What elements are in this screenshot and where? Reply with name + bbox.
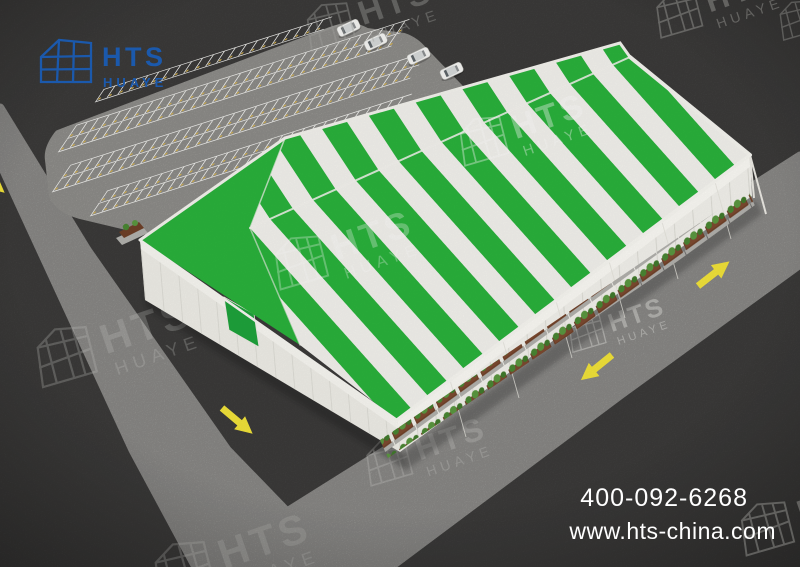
contact-website: www.hts-china.com bbox=[568, 518, 776, 544]
tent-3d-render: HTS HUAYE bbox=[0, 0, 800, 567]
render-stage: HTS HUAYE bbox=[0, 0, 800, 567]
logo-text-huaye: HUAYE bbox=[103, 75, 167, 90]
contact-phone: 400-092-6268 bbox=[580, 484, 748, 512]
logo-text-hts: HTS bbox=[102, 42, 167, 72]
